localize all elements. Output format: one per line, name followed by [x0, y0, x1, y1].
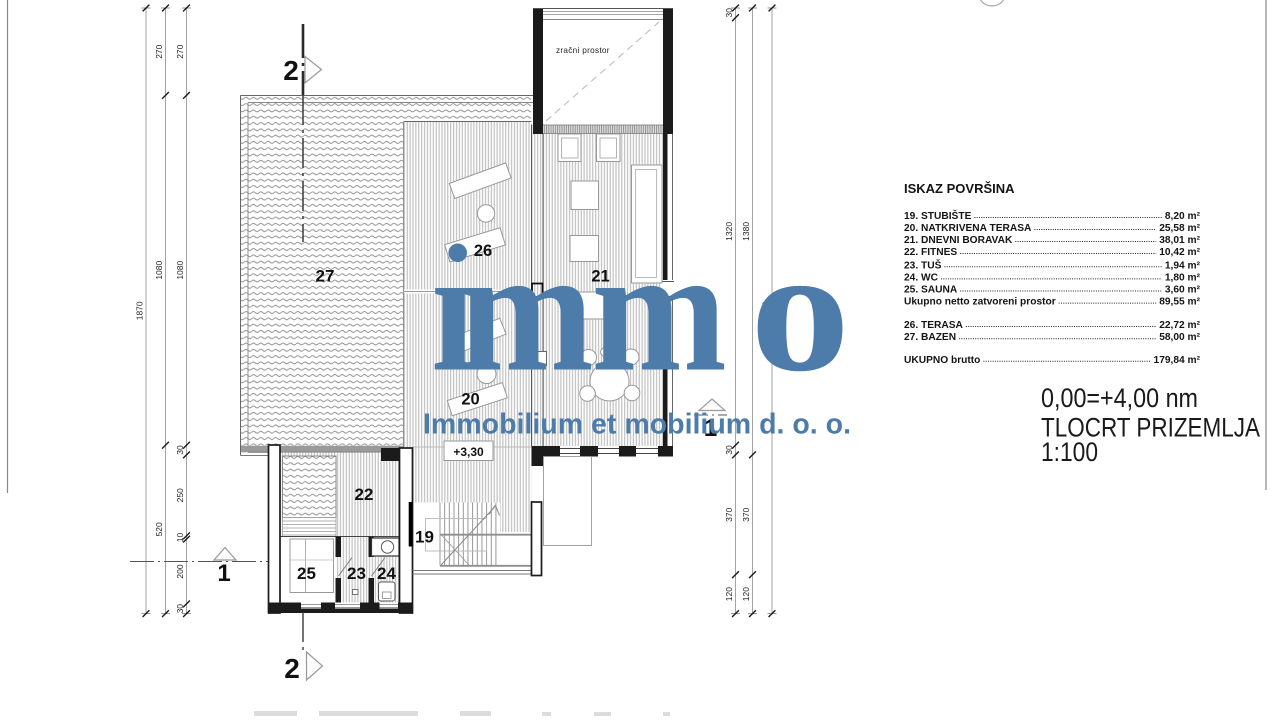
svg-text:1:100: 1:100: [1041, 437, 1098, 467]
svg-text:23: 23: [347, 564, 366, 583]
svg-text:2: 2: [283, 55, 299, 86]
svg-text:30: 30: [175, 445, 185, 455]
svg-text:1,80 m²: 1,80 m²: [1165, 272, 1201, 283]
svg-text:22. FITNES: 22. FITNES: [904, 247, 957, 258]
svg-text:3,60 m²: 3,60 m²: [1165, 285, 1201, 296]
svg-text:Ukupno netto zatvoreni prostor: Ukupno netto zatvoreni prostor: [904, 297, 1056, 308]
svg-text:270: 270: [154, 44, 164, 58]
svg-text:25,58 m²: 25,58 m²: [1159, 223, 1200, 234]
svg-text:10,42 m²: 10,42 m²: [1159, 247, 1200, 258]
svg-text:200: 200: [175, 564, 185, 578]
svg-text:1870: 1870: [135, 301, 145, 320]
svg-text:+3,30: +3,30: [453, 445, 484, 459]
svg-text:19. STUBIŠTE: 19. STUBIŠTE: [904, 209, 972, 222]
svg-text:24. WC: 24. WC: [904, 272, 939, 283]
svg-text:8,20 m²: 8,20 m²: [1165, 211, 1201, 222]
svg-text:27: 27: [316, 267, 335, 286]
svg-text:2: 2: [284, 653, 300, 684]
svg-text:1080: 1080: [175, 260, 185, 279]
svg-text:120: 120: [741, 587, 751, 601]
svg-text:370: 370: [724, 507, 734, 521]
svg-text:0,00=+4,00 nm: 0,00=+4,00 nm: [1041, 383, 1198, 413]
svg-text:Immobilium et mobilium d. o. o: Immobilium et mobilium d. o. o.: [423, 409, 851, 441]
svg-text:ISKAZ POVRŠINA: ISKAZ POVRŠINA: [904, 181, 1015, 196]
svg-text:21. DNEVNI BORAVAK: 21. DNEVNI BORAVAK: [904, 235, 1013, 246]
svg-text:19: 19: [415, 528, 434, 547]
svg-text:24: 24: [377, 564, 396, 583]
svg-text:m: m: [592, 211, 727, 408]
svg-text:26. TERASA: 26. TERASA: [904, 320, 964, 331]
svg-text:520: 520: [154, 522, 164, 536]
svg-text:370: 370: [741, 507, 751, 521]
svg-text:20. NATKRIVENA TERASA: 20. NATKRIVENA TERASA: [904, 223, 1032, 234]
svg-text:30: 30: [724, 445, 734, 455]
svg-text:89,55 m²: 89,55 m²: [1159, 297, 1200, 308]
svg-text:38,01 m²: 38,01 m²: [1159, 235, 1200, 246]
svg-text:30: 30: [175, 604, 185, 614]
svg-text:25: 25: [297, 564, 316, 583]
svg-text:10: 10: [175, 533, 185, 543]
svg-text:179,84 m²: 179,84 m²: [1154, 355, 1201, 366]
svg-text:zračni prostor: zračni prostor: [556, 46, 610, 55]
svg-text:30: 30: [724, 8, 734, 18]
svg-text:1,94 m²: 1,94 m²: [1165, 260, 1201, 271]
svg-text:UKUPNO brutto: UKUPNO brutto: [904, 355, 980, 366]
svg-text:m: m: [459, 211, 594, 408]
svg-text:270: 270: [175, 44, 185, 58]
svg-text:1: 1: [217, 560, 230, 587]
svg-text:22: 22: [355, 485, 374, 504]
svg-text:o: o: [750, 212, 850, 408]
svg-text:25. SAUNA: 25. SAUNA: [904, 285, 958, 296]
svg-text:120: 120: [724, 587, 734, 601]
svg-text:58,00 m²: 58,00 m²: [1159, 332, 1200, 343]
svg-text:22,72 m²: 22,72 m²: [1159, 320, 1200, 331]
svg-text:250: 250: [175, 488, 185, 502]
svg-text:27. BAZEN: 27. BAZEN: [904, 332, 956, 343]
svg-text:23. TUŠ: 23. TUŠ: [904, 258, 942, 271]
svg-text:1080: 1080: [154, 260, 164, 279]
